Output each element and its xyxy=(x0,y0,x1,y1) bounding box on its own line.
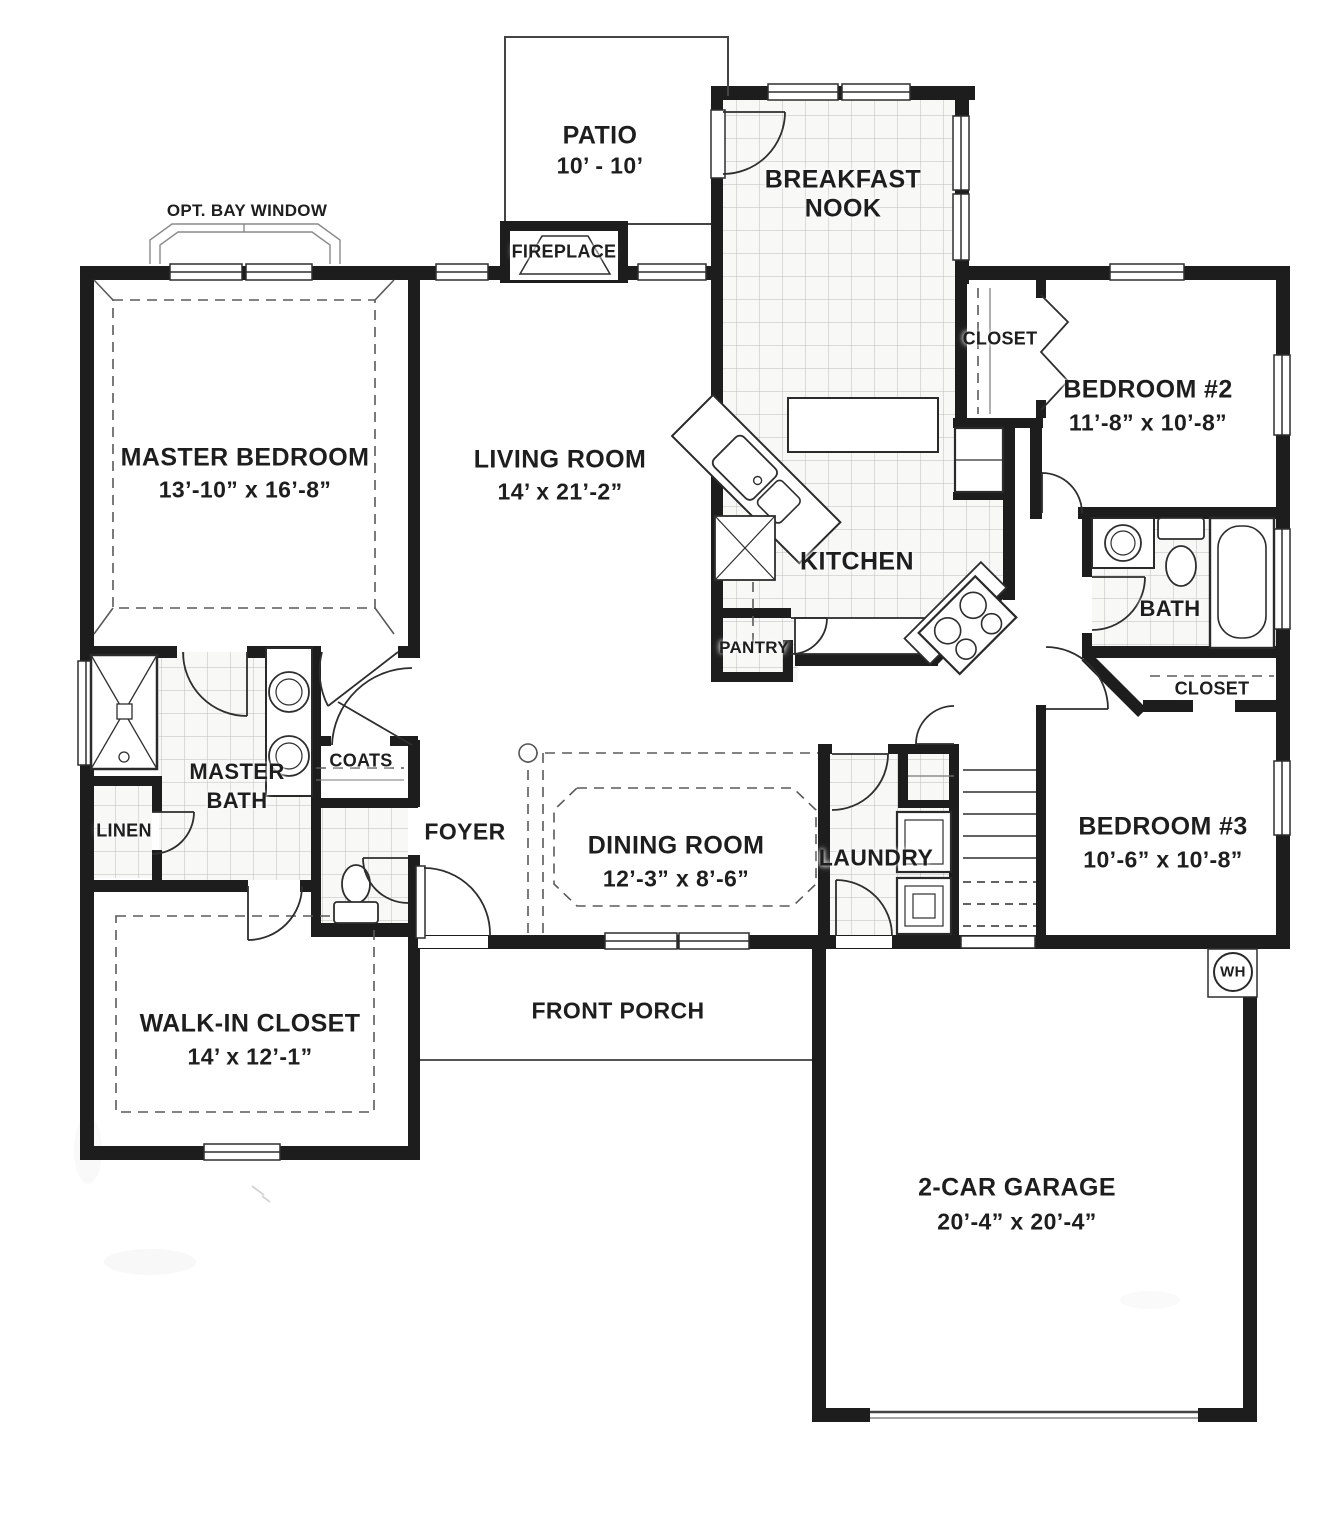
patio-dims: 10’ - 10’ xyxy=(557,153,644,180)
hall-closet-label: CLOSET xyxy=(1175,679,1250,700)
breakfast-nook-label: BREAKFAST xyxy=(765,166,921,195)
walk-in-closet-label: WALK-IN CLOSET xyxy=(140,1010,361,1039)
bedroom2-dims: 11’-8” x 10’-8” xyxy=(1069,410,1227,437)
water-heater-label: WH xyxy=(1220,964,1246,981)
bay-window-outline xyxy=(150,224,340,264)
shower xyxy=(91,655,157,769)
dining-room-dims: 12’-3” x 8’-6” xyxy=(603,866,749,893)
bedroom3-dims: 10’-6” x 10’-8” xyxy=(1083,847,1242,874)
pantry-label: PANTRY xyxy=(719,638,789,658)
foyer-label: FOYER xyxy=(424,819,505,846)
master-bath-label: MASTER xyxy=(189,759,284,785)
bay-window-note: OPT. BAY WINDOW xyxy=(167,201,327,221)
garage-label: 2-CAR GARAGE xyxy=(918,1174,1116,1203)
fireplace-label: FIREPLACE xyxy=(512,242,617,263)
garage-door xyxy=(870,1412,1198,1418)
bathtub xyxy=(1210,518,1274,648)
stairs xyxy=(963,770,1036,926)
living-room-dims: 14’ x 21’-2” xyxy=(498,479,623,506)
front-porch-label: FRONT PORCH xyxy=(531,998,704,1025)
master-bath-label2: BATH xyxy=(206,788,267,814)
dryer xyxy=(897,878,951,934)
walk-in-closet-dims: 14’ x 12’-1” xyxy=(188,1044,313,1071)
dining-room-label: DINING ROOM xyxy=(588,832,765,861)
master-bedroom-dims: 13’-10” x 16’-8” xyxy=(159,477,332,504)
floor-plan-page: PATIO 10’ - 10’ BREAKFAST NOOK OPT. BAY … xyxy=(0,0,1342,1536)
garage-dims: 20’-4” x 20’-4” xyxy=(937,1209,1096,1236)
bedroom2-label: BEDROOM #2 xyxy=(1063,376,1232,405)
living-room-label: LIVING ROOM xyxy=(474,446,646,475)
kitchen-corner-cabinet xyxy=(715,516,775,580)
bedroom3-label: BEDROOM #3 xyxy=(1078,813,1247,842)
linen-label: LINEN xyxy=(96,821,152,842)
coats-label: COATS xyxy=(329,751,392,772)
bedroom2-closet-label: CLOSET xyxy=(963,329,1038,350)
master-bedroom-label: MASTER BEDROOM xyxy=(121,444,370,473)
refrigerator xyxy=(955,428,1003,492)
patio-label: PATIO xyxy=(563,122,638,151)
breakfast-nook-label2: NOOK xyxy=(805,195,882,224)
dining-column xyxy=(519,744,537,762)
kitchen-label: KITCHEN xyxy=(800,548,914,577)
bath-label: BATH xyxy=(1139,596,1200,622)
laundry-label: LAUNDRY xyxy=(819,845,933,872)
kitchen-peninsula xyxy=(788,398,938,452)
bath-vanity xyxy=(1092,518,1154,568)
